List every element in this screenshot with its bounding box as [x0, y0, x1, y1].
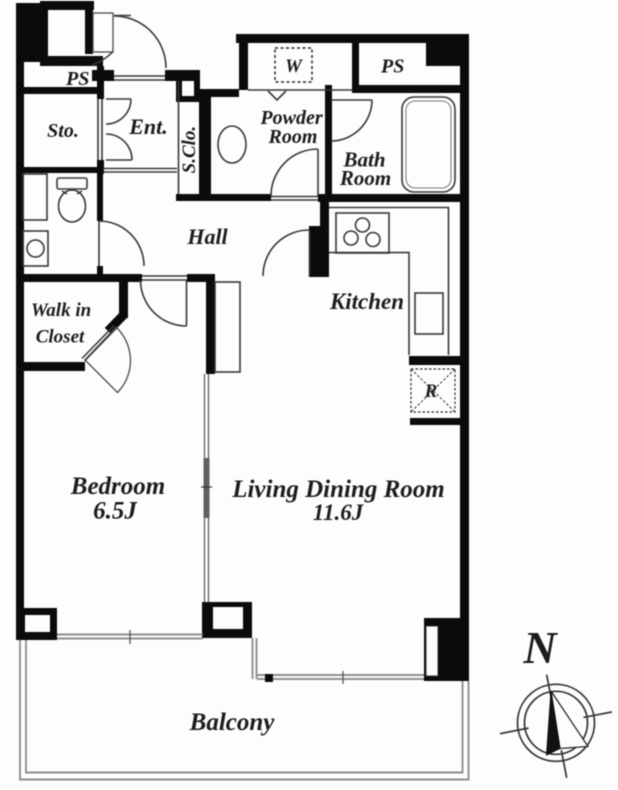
- svg-text:Bedroom: Bedroom: [70, 473, 165, 500]
- svg-text:PS: PS: [65, 68, 89, 90]
- svg-text:Kitchen: Kitchen: [329, 289, 404, 314]
- svg-text:W: W: [285, 56, 303, 77]
- svg-text:Hall: Hall: [186, 224, 228, 249]
- svg-text:Closet: Closet: [36, 327, 85, 348]
- svg-text:N: N: [522, 622, 558, 673]
- svg-text:Living Dining Room: Living Dining Room: [231, 476, 445, 503]
- svg-text:PS: PS: [380, 56, 404, 78]
- svg-text:Sto.: Sto.: [47, 120, 79, 142]
- svg-text:Ent.: Ent.: [128, 114, 168, 139]
- svg-text:Walk in: Walk in: [31, 300, 91, 321]
- svg-text:11.6J: 11.6J: [313, 500, 365, 525]
- svg-text:Room: Room: [268, 126, 318, 148]
- svg-text:Balcony: Balcony: [189, 709, 276, 736]
- svg-text:6.5J: 6.5J: [93, 498, 138, 525]
- svg-text:S.Clo.: S.Clo.: [179, 126, 200, 174]
- svg-text:R: R: [424, 381, 438, 402]
- svg-text:Room: Room: [339, 166, 391, 190]
